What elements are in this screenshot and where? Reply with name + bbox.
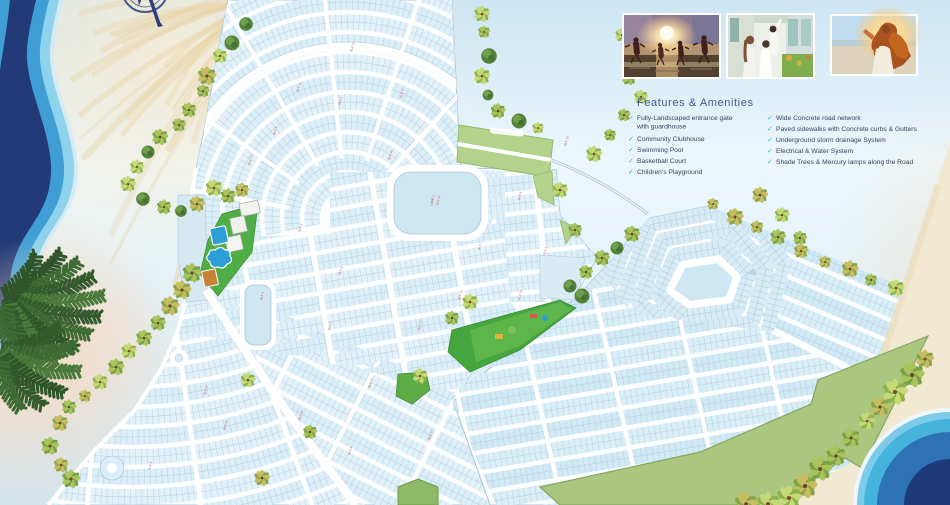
svg-text:✓: ✓ — [628, 147, 634, 154]
svg-text:✓: ✓ — [628, 115, 634, 122]
svg-text:✓: ✓ — [767, 137, 773, 144]
svg-text:✓: ✓ — [628, 136, 634, 143]
svg-text:Paved sidewalks with Concrete: Paved sidewalks with Concrete curbs & Gu… — [776, 126, 918, 133]
svg-text:✓: ✓ — [767, 148, 773, 155]
svg-text:Community Clubhouse: Community Clubhouse — [637, 136, 705, 143]
svg-text:Electrical & Water System: Electrical & Water System — [776, 148, 853, 155]
svg-text:with guardhouse: with guardhouse — [636, 124, 686, 131]
svg-text:Underground storm drainage Sys: Underground storm drainage System — [776, 137, 886, 144]
svg-text:Fully-Landscaped entrance gate: Fully-Landscaped entrance gate — [637, 115, 733, 122]
svg-text:✓: ✓ — [767, 115, 773, 122]
svg-text:✓: ✓ — [628, 158, 634, 165]
svg-text:Basketball Court: Basketball Court — [637, 158, 686, 165]
svg-text:✓: ✓ — [767, 159, 773, 166]
svg-text:Wide Concrete road network: Wide Concrete road network — [776, 115, 861, 122]
svg-text:✓: ✓ — [767, 126, 773, 133]
svg-text:Features & Amenities: Features & Amenities — [637, 97, 754, 109]
svg-text:Swimming Pool: Swimming Pool — [637, 147, 684, 154]
svg-text:✓: ✓ — [628, 169, 634, 176]
svg-text:Shade Trees & Mercury lamps al: Shade Trees & Mercury lamps along the Ro… — [776, 159, 913, 166]
svg-text:Children’s Playground: Children’s Playground — [637, 169, 703, 176]
